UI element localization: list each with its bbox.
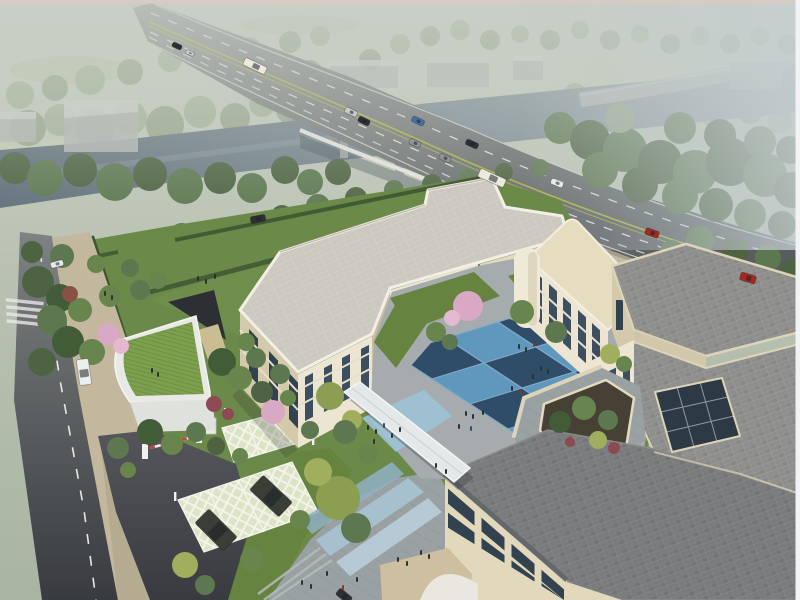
tree — [251, 381, 273, 403]
top-border — [0, 0, 800, 4]
tree — [237, 333, 255, 351]
pedestrian — [157, 372, 159, 377]
tree — [545, 321, 567, 343]
pedestrian — [540, 366, 542, 371]
shrub — [608, 442, 620, 454]
tree — [149, 271, 167, 289]
pedestrian — [111, 295, 113, 300]
tree — [290, 510, 310, 530]
tree — [232, 448, 248, 464]
tree — [186, 422, 206, 442]
tree — [62, 286, 78, 302]
pedestrian — [373, 439, 375, 444]
pedestrian — [205, 279, 207, 284]
tree — [195, 575, 215, 595]
pedestrian — [435, 463, 437, 468]
tree — [207, 437, 225, 455]
blossom-tree — [261, 400, 285, 424]
pedestrian — [420, 550, 422, 555]
pedestrian — [391, 433, 393, 438]
blossom-tree — [113, 338, 129, 354]
tree — [228, 366, 252, 390]
pedestrian — [445, 469, 447, 474]
van-windshield — [79, 369, 89, 378]
tree — [358, 444, 378, 464]
tree — [87, 255, 105, 273]
pedestrian — [547, 369, 549, 374]
gate-post — [142, 444, 148, 459]
aerial-rendering — [0, 0, 800, 600]
pedestrian — [511, 386, 513, 391]
pedestrian — [470, 426, 472, 431]
pedestrian — [399, 427, 401, 432]
pedestrian — [104, 291, 106, 296]
tree — [21, 241, 43, 263]
pedestrian — [472, 414, 474, 419]
shrub — [206, 396, 222, 412]
tree — [304, 458, 332, 486]
shrub — [565, 437, 575, 447]
pedestrian — [342, 585, 344, 590]
tree — [270, 364, 290, 384]
pedestrian — [519, 389, 521, 394]
tree — [121, 259, 139, 277]
pedestrian — [482, 410, 484, 415]
tree — [99, 285, 121, 307]
tree — [246, 348, 266, 368]
tree — [616, 356, 632, 372]
pedestrian — [197, 276, 199, 281]
pedestrian — [367, 425, 369, 430]
tree — [333, 420, 357, 444]
tree — [120, 462, 136, 478]
tree — [572, 396, 596, 420]
pedestrian — [310, 584, 312, 589]
pedestrian — [532, 374, 534, 379]
tree — [589, 431, 607, 449]
pedestrian — [525, 347, 527, 352]
tree — [107, 437, 129, 459]
tree — [130, 280, 150, 300]
tree — [172, 552, 198, 578]
rendering-canvas — [0, 0, 800, 600]
tree — [341, 513, 371, 543]
pedestrian — [518, 344, 520, 349]
tree — [316, 382, 344, 410]
right-border — [796, 0, 800, 600]
pedestrian — [326, 571, 328, 576]
tree — [137, 419, 163, 445]
tree — [301, 421, 319, 439]
tree — [442, 334, 458, 350]
pedestrian — [214, 274, 216, 279]
tree — [510, 300, 534, 324]
tree — [161, 433, 183, 455]
pedestrian — [397, 557, 399, 562]
pedestrian — [356, 577, 358, 582]
ne-block-window — [616, 300, 623, 330]
pedestrian — [428, 554, 430, 559]
tree — [598, 410, 618, 430]
tree — [240, 548, 264, 572]
pedestrian — [533, 342, 535, 347]
tree — [280, 390, 296, 406]
pedestrian — [406, 561, 408, 566]
pedestrian — [465, 411, 467, 416]
tree — [28, 348, 56, 376]
blossom-tree — [444, 310, 460, 326]
shrub — [222, 408, 234, 420]
pedestrian — [375, 429, 377, 434]
tree — [549, 411, 571, 433]
pedestrian — [151, 368, 153, 373]
pedestrian — [301, 580, 303, 585]
pedestrian — [383, 423, 385, 428]
pedestrian — [458, 424, 460, 429]
